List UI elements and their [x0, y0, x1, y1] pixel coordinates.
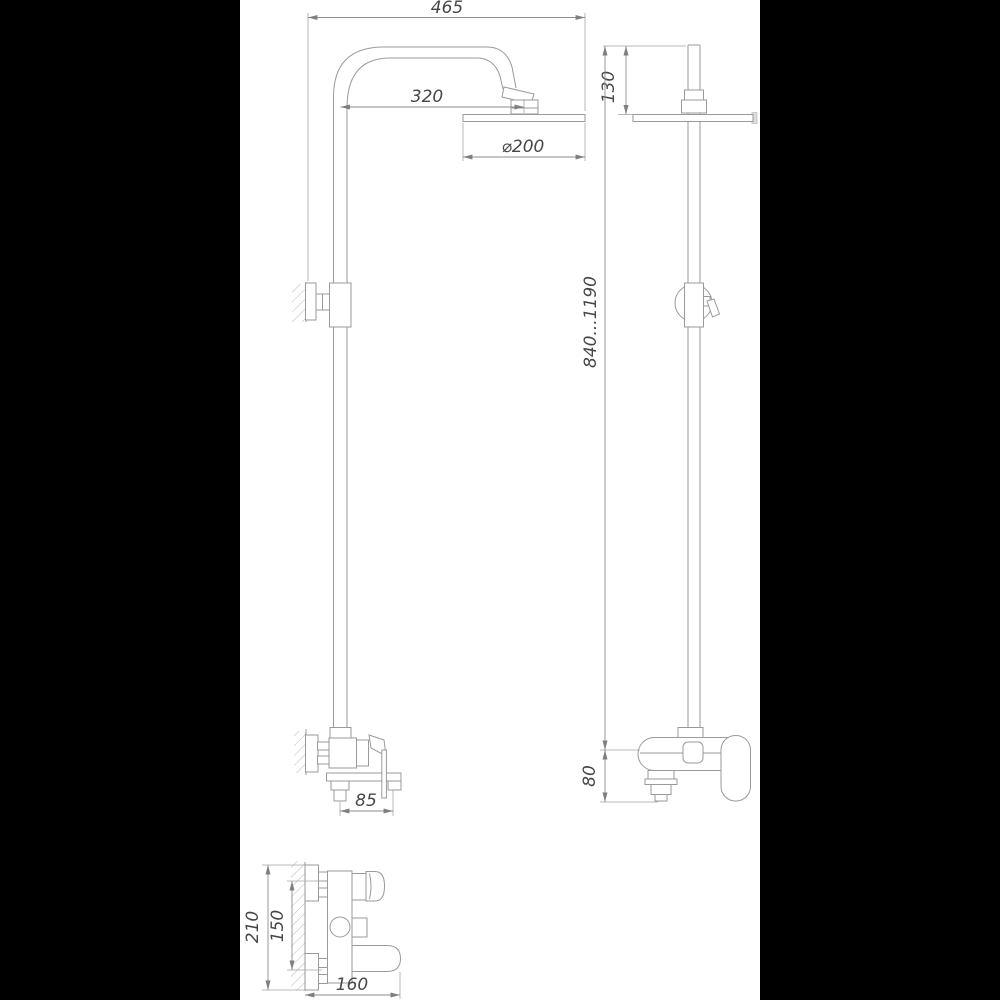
side-slide-sleeve [685, 283, 704, 327]
riser-pipe-outer [334, 47, 517, 283]
plan-mount-top [305, 865, 319, 901]
black-matte-right [760, 0, 1000, 1000]
screenshot-root: { "drawing": { "kind": "technical-dimens… [0, 0, 1000, 1000]
mixer-cartridge-front [357, 740, 369, 766]
hose-outlet-step1 [331, 781, 349, 790]
mixer-base-plate [327, 773, 402, 781]
dimensions-side: 130 840...1190 80 [580, 46, 686, 802]
wall-hatch-upper [292, 284, 306, 322]
dim-label-80: 80 [580, 765, 600, 787]
wall-hatch-mixer [294, 731, 306, 773]
mixer-body-front [329, 738, 357, 768]
plan-lever-knob [366, 872, 385, 902]
diverter-button-side [683, 742, 703, 763]
plan-inlet-top-1 [319, 872, 328, 881]
upper-bracket-plate [306, 283, 317, 320]
outlet-step1-side [648, 771, 674, 780]
rain-head-plate-side [633, 115, 753, 122]
upper-slide-sleeve [330, 283, 352, 327]
mixer-wall-tab-bottom [318, 756, 330, 764]
dimensions-front: 465 320 ⌀200 85 [308, 0, 585, 816]
hose-outlet-step2 [334, 790, 346, 801]
base-plate-boss [388, 781, 401, 790]
dim-label-320: 320 [411, 87, 443, 107]
mixer-wall-tab-top [318, 742, 330, 750]
drawing-sheet: 465 320 ⌀200 85 [240, 0, 760, 1000]
dim-label-150: 150 [268, 910, 288, 942]
black-matte-left [0, 0, 240, 1000]
dim-label-210: 210 [243, 911, 263, 943]
dim-label-200: ⌀200 [502, 137, 545, 157]
dim-label-465: 465 [431, 0, 463, 18]
technical-drawing: 465 320 ⌀200 85 [240, 0, 760, 1000]
mixer-top-connector-side [678, 728, 703, 739]
head-connector-side [682, 100, 707, 113]
plan-inlet-top-2 [319, 888, 328, 897]
front-view [292, 47, 585, 801]
plan-mount-bottom [305, 954, 319, 991]
dim-label-840-1190: 840...1190 [581, 276, 601, 368]
head-nut-side [685, 90, 704, 100]
dim-label-85: 85 [355, 791, 377, 811]
wall-hatch-plan [291, 861, 305, 991]
outlet-nut-side [645, 779, 677, 785]
plan-lever-base [352, 874, 366, 901]
plan-inlet-bottom-1 [319, 959, 328, 968]
dim-label-130: 130 [599, 71, 619, 103]
plan-inlet-bottom-2 [319, 975, 328, 984]
plan-diverter-block [352, 918, 367, 937]
side-view [633, 45, 757, 801]
mixer-handle-side [721, 736, 751, 802]
plan-spout [352, 946, 401, 972]
plan-view [291, 861, 401, 991]
mixer-inlet-sleeve [330, 728, 351, 739]
dim-label-160: 160 [336, 975, 368, 995]
outlet-tip-side [655, 795, 667, 802]
mixer-lever-tip [382, 750, 387, 798]
plan-diverter-circle [330, 917, 350, 937]
rain-head-plate-front [463, 115, 585, 122]
mixer-wall-plate [306, 735, 319, 772]
outlet-step2-side [651, 785, 671, 795]
